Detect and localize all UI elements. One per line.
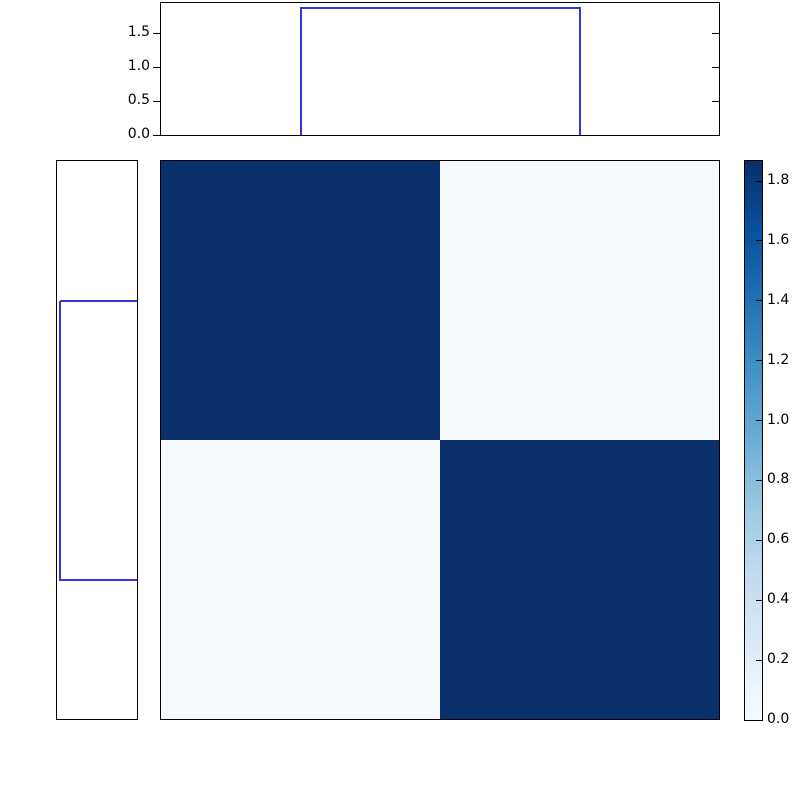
dendrogram-link-segment [60,579,137,581]
dendrogram-link-segment [60,300,137,302]
y-axis-tick [153,33,160,34]
colorbar-tick-label: 0.8 [767,472,789,487]
colorbar-tick-label: 1.8 [767,173,789,188]
y-axis-tick-label: 1.0 [110,59,150,74]
colorbar-tick [756,660,762,661]
dendrogram-link-segment [59,301,61,581]
y-axis-tick-label: 0.5 [110,93,150,108]
colorbar-tick-label: 1.0 [767,413,789,428]
y-axis-tick [712,67,719,68]
y-axis-tick [153,135,160,136]
y-axis-tick-label: 0.0 [110,127,150,142]
colorbar-tick [756,480,762,481]
y-axis-tick [153,67,160,68]
y-axis-tick [153,101,160,102]
dendrogram-link-segment [300,8,302,135]
y-axis-tick [712,33,719,34]
heatmap-cell [440,161,719,440]
colorbar-tick-label: 0.0 [767,712,789,727]
left-dendrogram-axes [56,160,138,720]
colorbar-tick-label: 0.6 [767,532,789,547]
colorbar-tick [756,720,762,721]
figure: 0.00.51.01.51.81.61.41.21.00.80.60.40.20… [0,0,800,800]
colorbar-tick-label: 0.4 [767,592,789,607]
colorbar-tick-label: 1.2 [767,353,789,368]
heatmap-cell [440,440,719,719]
heatmap-axes [160,160,720,720]
dendrogram-link-segment [300,7,581,9]
colorbar-tick [756,420,762,421]
colorbar-tick [756,300,762,301]
colorbar-tick [756,181,762,182]
dendrogram-link-segment [579,8,581,135]
colorbar-tick-label: 1.4 [767,293,789,308]
colorbar-tick-label: 1.6 [767,233,789,248]
heatmap-cell [161,440,440,719]
colorbar-axes [744,160,763,721]
colorbar-tick-label: 0.2 [767,652,789,667]
colorbar-tick [756,540,762,541]
y-axis-tick-label: 1.5 [110,25,150,40]
y-axis-tick [712,101,719,102]
colorbar-tick [756,360,762,361]
colorbar-tick [756,600,762,601]
top-dendrogram-axes [160,2,720,136]
y-axis-tick [712,135,719,136]
colorbar-tick [756,240,762,241]
heatmap-cell [161,161,440,440]
